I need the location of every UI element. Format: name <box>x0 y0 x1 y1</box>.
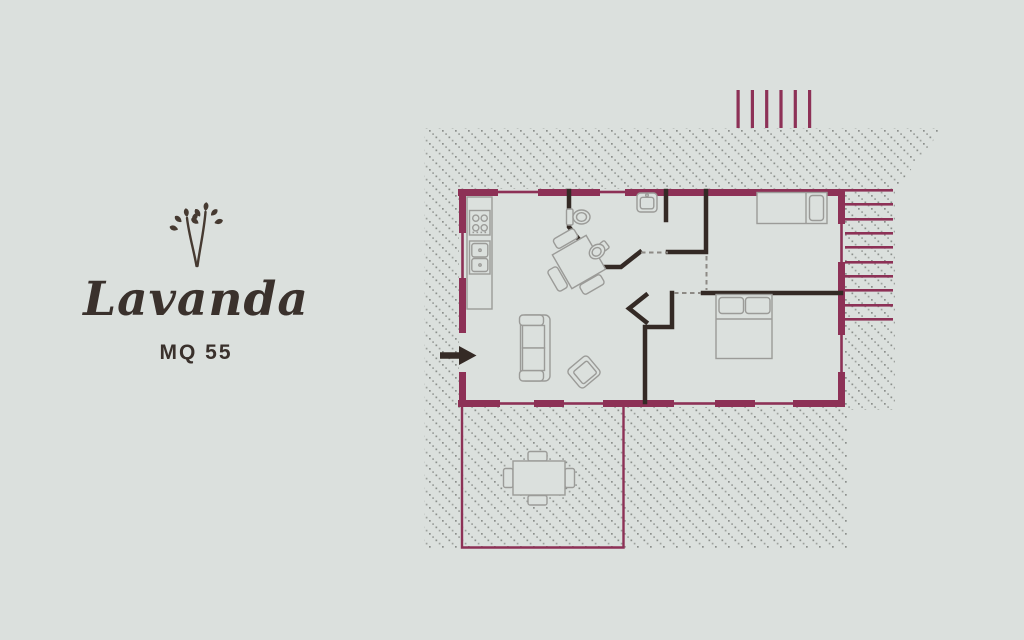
terrace-chair <box>504 469 514 488</box>
single-bed <box>757 193 827 224</box>
armchair <box>566 354 601 389</box>
lavender-sprig-icon <box>168 193 224 269</box>
washbasin <box>637 193 657 212</box>
terrace-chair <box>565 469 575 488</box>
area-label: MQ 55 <box>159 341 232 365</box>
kitchen-sink <box>470 241 491 274</box>
terrace-chair <box>528 452 547 462</box>
plan-title: Lavanda <box>83 275 309 324</box>
sofa <box>520 315 551 381</box>
double-bed <box>716 295 772 359</box>
stove <box>470 211 491 236</box>
dining-table <box>535 224 612 305</box>
door-openings <box>641 253 707 294</box>
pergola-lines <box>737 90 812 128</box>
toilet <box>567 209 591 225</box>
floor-plan-poster: Lavanda MQ 55 <box>0 0 1024 640</box>
terrace-chair <box>528 496 547 506</box>
info-panel: Lavanda MQ 55 <box>0 0 392 640</box>
